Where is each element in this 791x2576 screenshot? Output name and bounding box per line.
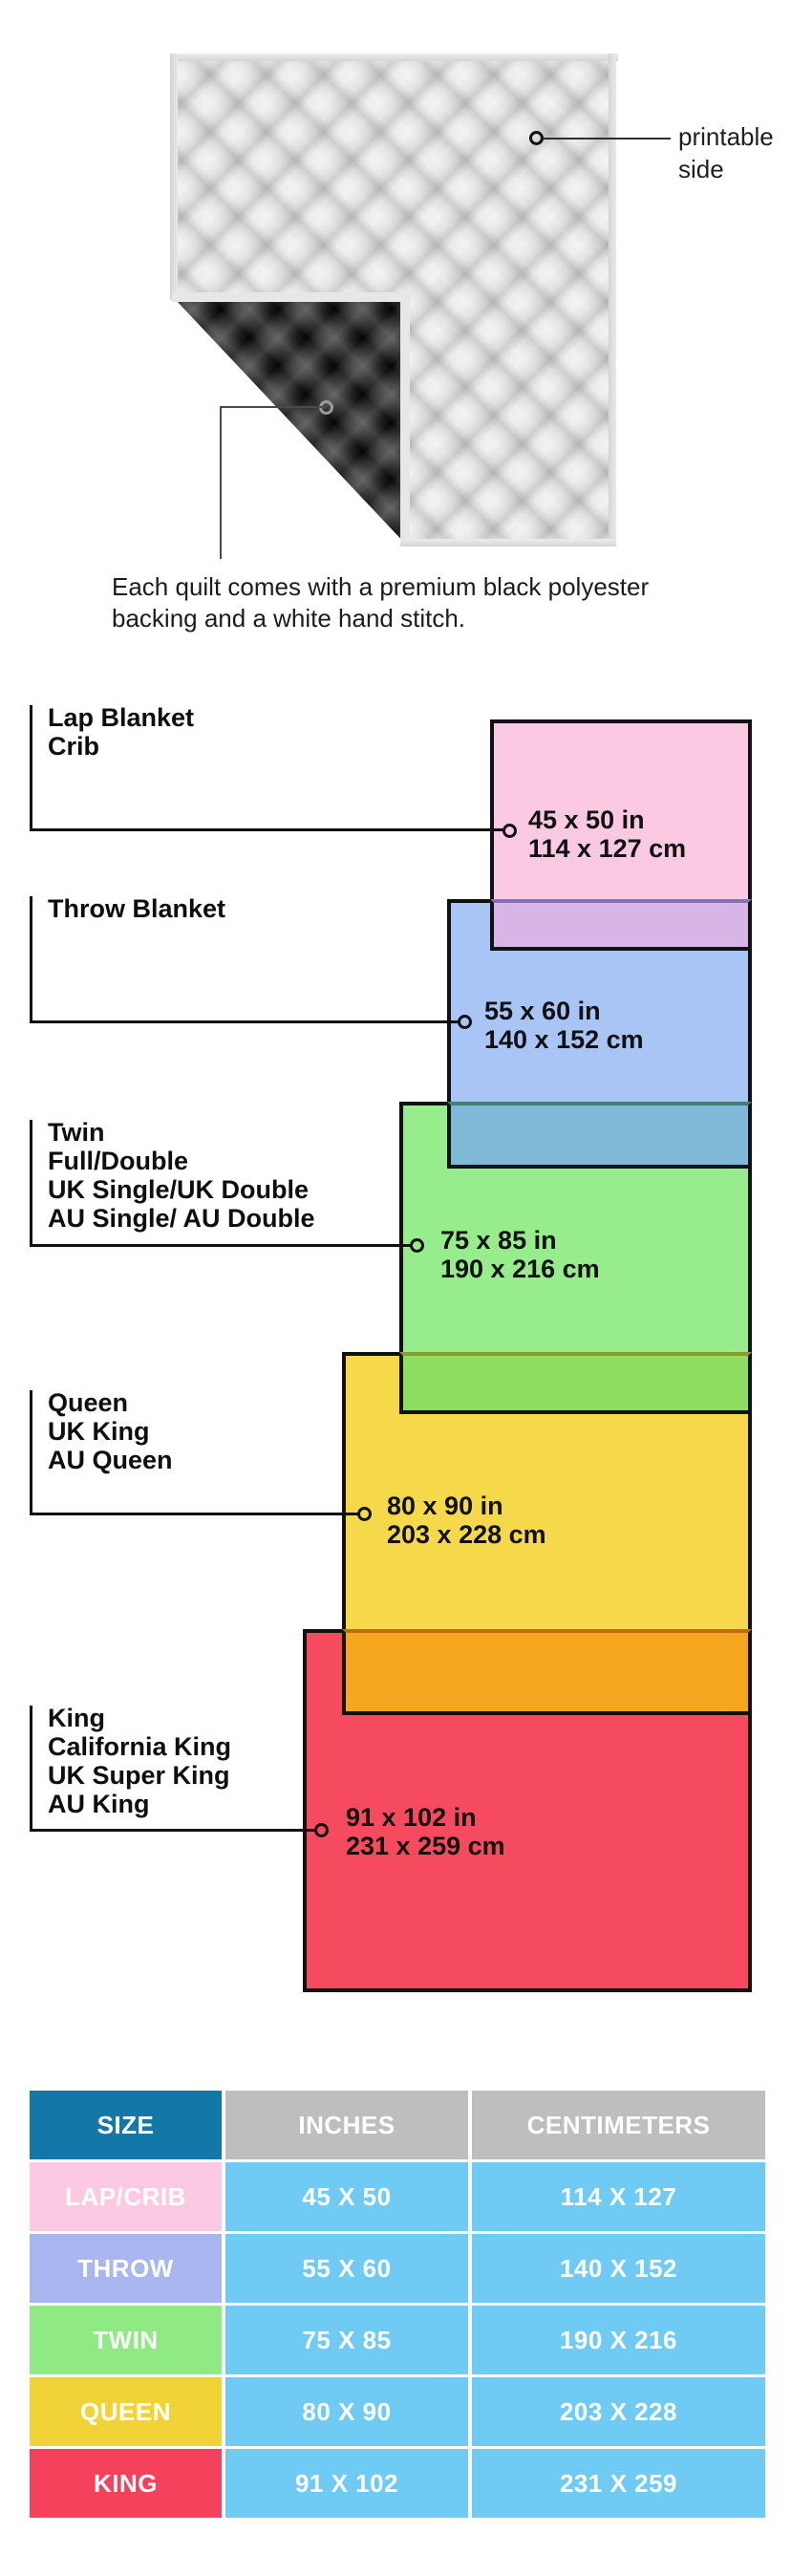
size-label-line: Full/Double [48,1147,315,1175]
size-label-line: Lap Blanket [48,703,194,732]
king-marker-circle [314,1823,329,1837]
table-cell-queen-size: QUEEN [30,2377,222,2446]
size-label-line: AU King [48,1790,231,1818]
size-label-group-twin: Twin Full/Double UK Single/UK Double AU … [48,1118,315,1233]
table-cell-lapcrib-cm: 114 X 127 [472,2162,765,2231]
printable-side-callout-line [544,138,671,140]
quilt-back-black-fold [175,299,408,547]
quilt-size-chart-infographic: printable side Each quilt comes with a p… [0,0,791,2576]
quilt-binding-right [609,54,616,547]
size-label-line: Twin [48,1118,315,1147]
black-backing-callout-line-v [220,406,222,559]
king-dimensions-cm: 231 x 259 cm [346,1832,505,1860]
queen-callout-line-h [31,1513,359,1515]
table-cell-lapcrib-inches: 45 X 50 [225,2162,468,2231]
size-label-line: King [48,1704,231,1732]
twin-dimensions: 75 x 85 in 190 x 216 cm [440,1226,600,1283]
queen-dimensions-cm: 203 x 228 cm [387,1520,546,1549]
size-label-group-queen: Queen UK King AU Queen [48,1388,173,1474]
twin-callout-line-v [30,1120,32,1247]
size-label-line: AU Single/ AU Double [48,1204,315,1233]
throw-dimensions: 55 x 60 in 140 x 152 cm [484,997,644,1054]
size-label-line: UK King [48,1417,173,1446]
throw-callout-line-v [30,896,32,1023]
black-backing-callout-line-h [221,406,326,408]
throw-dimensions-cm: 140 x 152 cm [484,1025,644,1054]
quilt-binding-left [170,54,178,300]
queen-dimensions-inches: 80 x 90 in [387,1492,546,1520]
quilt-binding-fold-edge [172,292,411,302]
size-label-group-lap-crib: Lap Blanket Crib [48,703,194,761]
size-label-line: AU Queen [48,1446,173,1474]
quilt-binding-top [170,54,618,61]
lap-callout-line-h [31,828,503,831]
lap-marker-circle [502,824,517,838]
king-callout-line-h [31,1829,316,1832]
overlap-lap-throw [490,899,752,951]
table-cell-king-size: KING [30,2449,222,2518]
table-header-centimeters: CENTIMETERS [472,2091,765,2159]
king-callout-line-v [30,1706,32,1832]
lap-dimensions-cm: 114 x 127 cm [528,834,686,863]
overlap-twin-queen [399,1352,752,1414]
queen-dimensions: 80 x 90 in 203 x 228 cm [387,1492,546,1549]
throw-callout-line-h [31,1020,460,1023]
table-cell-twin-size: TWIN [30,2306,222,2374]
twin-marker-circle [410,1238,424,1253]
size-label-line: Throw Blanket [48,894,225,923]
size-label-group-king: King California King UK Super King AU Ki… [48,1704,231,1818]
table-cell-king-cm: 231 X 259 [472,2449,765,2518]
table-cell-king-inches: 91 X 102 [225,2449,468,2518]
quilt-caption-line1: Each quilt comes with a premium black po… [112,571,649,603]
queen-callout-line-v [30,1390,32,1515]
table-cell-throw-size: THROW [30,2234,222,2303]
size-label-line: UK Super King [48,1761,231,1790]
king-dimensions: 91 x 102 in 231 x 259 cm [346,1803,505,1860]
size-label-line: Crib [48,732,194,761]
table-cell-lapcrib-size: LAP/CRIB [30,2162,222,2231]
table-cell-twin-cm: 190 X 216 [472,2306,765,2374]
table-cell-twin-inches: 75 X 85 [225,2306,468,2374]
table-cell-queen-inches: 80 X 90 [225,2377,468,2446]
throw-dimensions-inches: 55 x 60 in [484,997,644,1025]
quilt-caption: Each quilt comes with a premium black po… [112,571,649,634]
printable-side-label-line2: side [678,153,774,185]
twin-dimensions-cm: 190 x 216 cm [440,1255,600,1283]
printable-side-label-line1: printable [678,120,774,153]
queen-marker-circle [357,1507,372,1521]
quilt-binding-fold-vertical [400,297,410,547]
twin-callout-line-h [31,1244,412,1247]
printable-side-label: printable side [678,120,774,185]
table-cell-throw-inches: 55 X 60 [225,2234,468,2303]
table-header-inches: INCHES [225,2091,468,2159]
overlap-queen-king [342,1629,752,1715]
printable-side-marker-circle [529,131,544,145]
quilt-binding-bottom [400,539,616,547]
lap-callout-line-v [30,705,32,831]
overlap-throw-twin [447,1102,752,1169]
twin-dimensions-inches: 75 x 85 in [440,1226,600,1255]
size-label-line: Queen [48,1388,173,1417]
size-label-line: California King [48,1732,231,1761]
table-cell-queen-cm: 203 X 228 [472,2377,765,2446]
table-header-size: SIZE [30,2091,222,2159]
quilt-caption-line2: backing and a white hand stitch. [112,603,649,634]
size-label-group-throw: Throw Blanket [48,894,225,923]
table-cell-throw-cm: 140 X 152 [472,2234,765,2303]
lap-dimensions-inches: 45 x 50 in [528,805,686,834]
size-label-line: UK Single/UK Double [48,1175,315,1204]
king-dimensions-inches: 91 x 102 in [346,1803,505,1832]
throw-marker-circle [458,1015,472,1029]
lap-dimensions: 45 x 50 in 114 x 127 cm [528,805,686,863]
